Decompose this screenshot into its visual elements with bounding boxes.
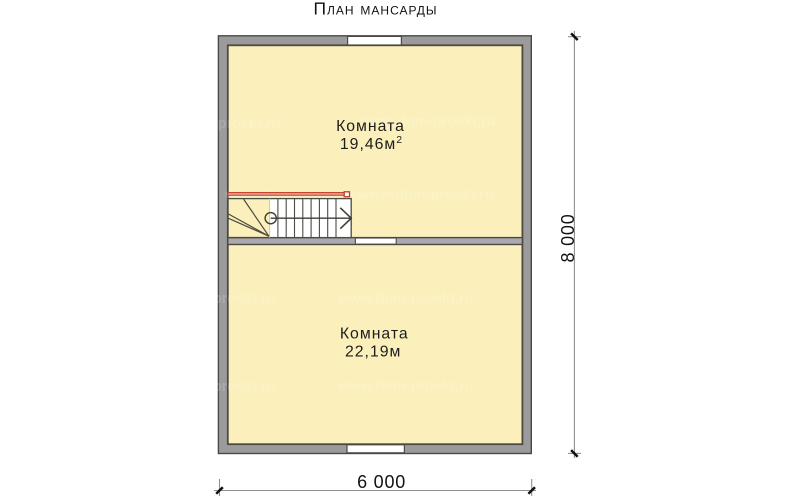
svg-text:22,19м: 22,19м — [345, 344, 401, 361]
svg-text:www.dom-proekt.ru: www.dom-proekt.ru — [337, 291, 474, 307]
svg-text:8 000: 8 000 — [558, 213, 578, 262]
svg-text:www.dom-proekt.ru: www.dom-proekt.ru — [139, 379, 276, 395]
svg-text:Комната: Комната — [340, 326, 409, 343]
svg-text:План мансарды: План мансарды — [314, 0, 438, 18]
svg-text:www.dom-proekt.ru: www.dom-proekt.ru — [144, 116, 281, 132]
svg-text:www.dom-proekt.ru: www.dom-proekt.ru — [357, 187, 494, 203]
svg-text:Комната: Комната — [336, 118, 405, 135]
svg-text:6 000: 6 000 — [357, 472, 406, 492]
svg-text:www.dom-proekt.ru: www.dom-proekt.ru — [139, 291, 276, 307]
svg-text:19,46м2: 19,46м2 — [340, 134, 403, 153]
svg-text:www.dom-proekt.ru: www.dom-proekt.ru — [337, 379, 474, 395]
